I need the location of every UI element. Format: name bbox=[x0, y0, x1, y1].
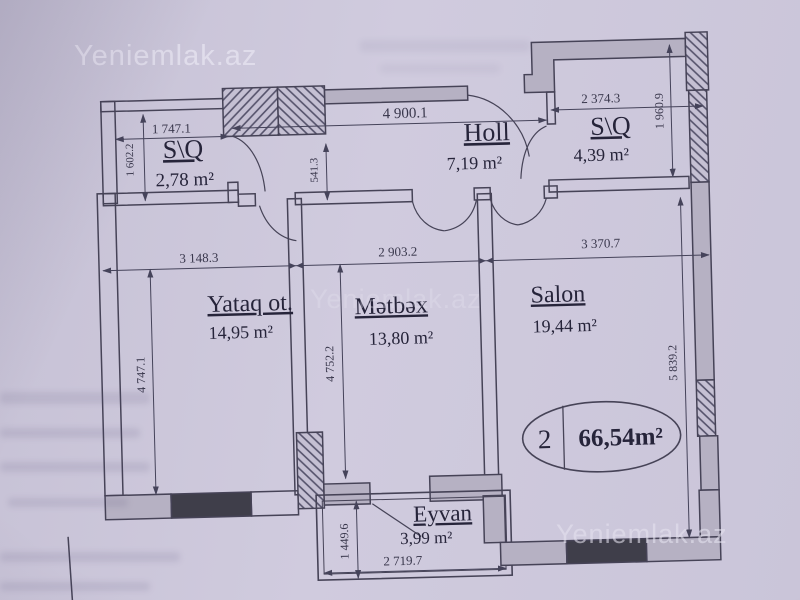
dim-holl-width: 4 900.1 bbox=[382, 105, 427, 122]
room-name-eyvan: Eyvan bbox=[413, 500, 473, 527]
room-area-eyvan: 3,99 m² bbox=[400, 528, 453, 548]
badge-total-area: 66,54m² bbox=[578, 423, 663, 452]
dim-sq-right-width: 2 374.3 bbox=[581, 90, 620, 106]
dim-metbex-width: 2 903.2 bbox=[378, 244, 417, 260]
room-area-yataq: 14,95 m² bbox=[208, 321, 273, 343]
dim-metbex-height: 4 752.2 bbox=[322, 346, 337, 382]
dim-eyvan-width: 2 719.7 bbox=[383, 552, 423, 568]
room-name-salon: Salon bbox=[530, 281, 585, 308]
dim-salon-width: 3 370.7 bbox=[581, 235, 621, 251]
badge-room-count: 2 bbox=[538, 424, 552, 454]
room-name-metbex: Mətbəx bbox=[354, 292, 428, 320]
dim-holl-wall: 541.3 bbox=[308, 157, 321, 183]
dim-yataq-height: 4 747.1 bbox=[133, 357, 148, 393]
dim-sq-left-height: 1 602.2 bbox=[124, 143, 137, 176]
room-labels: S\Q 2,78 m² Holl 7,19 m² S\Q 4,39 m² Yat… bbox=[154, 111, 642, 554]
floor-plan-photo: 1 747.1 4 900.1 2 374.3 1 960.9 1 602.2 … bbox=[0, 0, 800, 600]
room-area-sq-right: 4,39 m² bbox=[573, 144, 629, 165]
total-area-badge: 2 66,54m² bbox=[522, 400, 682, 474]
room-area-holl: 7,19 m² bbox=[446, 152, 502, 173]
room-name-sq-right: S\Q bbox=[590, 111, 631, 141]
room-name-holl: Holl bbox=[463, 117, 510, 147]
dim-eyvan-height: 1 449.6 bbox=[337, 523, 352, 559]
room-area-sq-left: 2,78 m² bbox=[155, 169, 214, 192]
room-name-yataq: Yataq ot. bbox=[207, 290, 293, 318]
dim-yataq-width: 3 148.3 bbox=[179, 250, 218, 266]
room-area-metbex: 13,80 m² bbox=[369, 327, 434, 349]
room-area-salon: 19,44 m² bbox=[532, 315, 597, 337]
dim-salon-height: 5 839.2 bbox=[665, 345, 680, 381]
room-name-sq-left: S\Q bbox=[162, 134, 203, 164]
dim-sq-right-height: 1 960.9 bbox=[652, 93, 667, 129]
floor-plan-drawing: 1 747.1 4 900.1 2 374.3 1 960.9 1 602.2 … bbox=[0, 0, 800, 600]
